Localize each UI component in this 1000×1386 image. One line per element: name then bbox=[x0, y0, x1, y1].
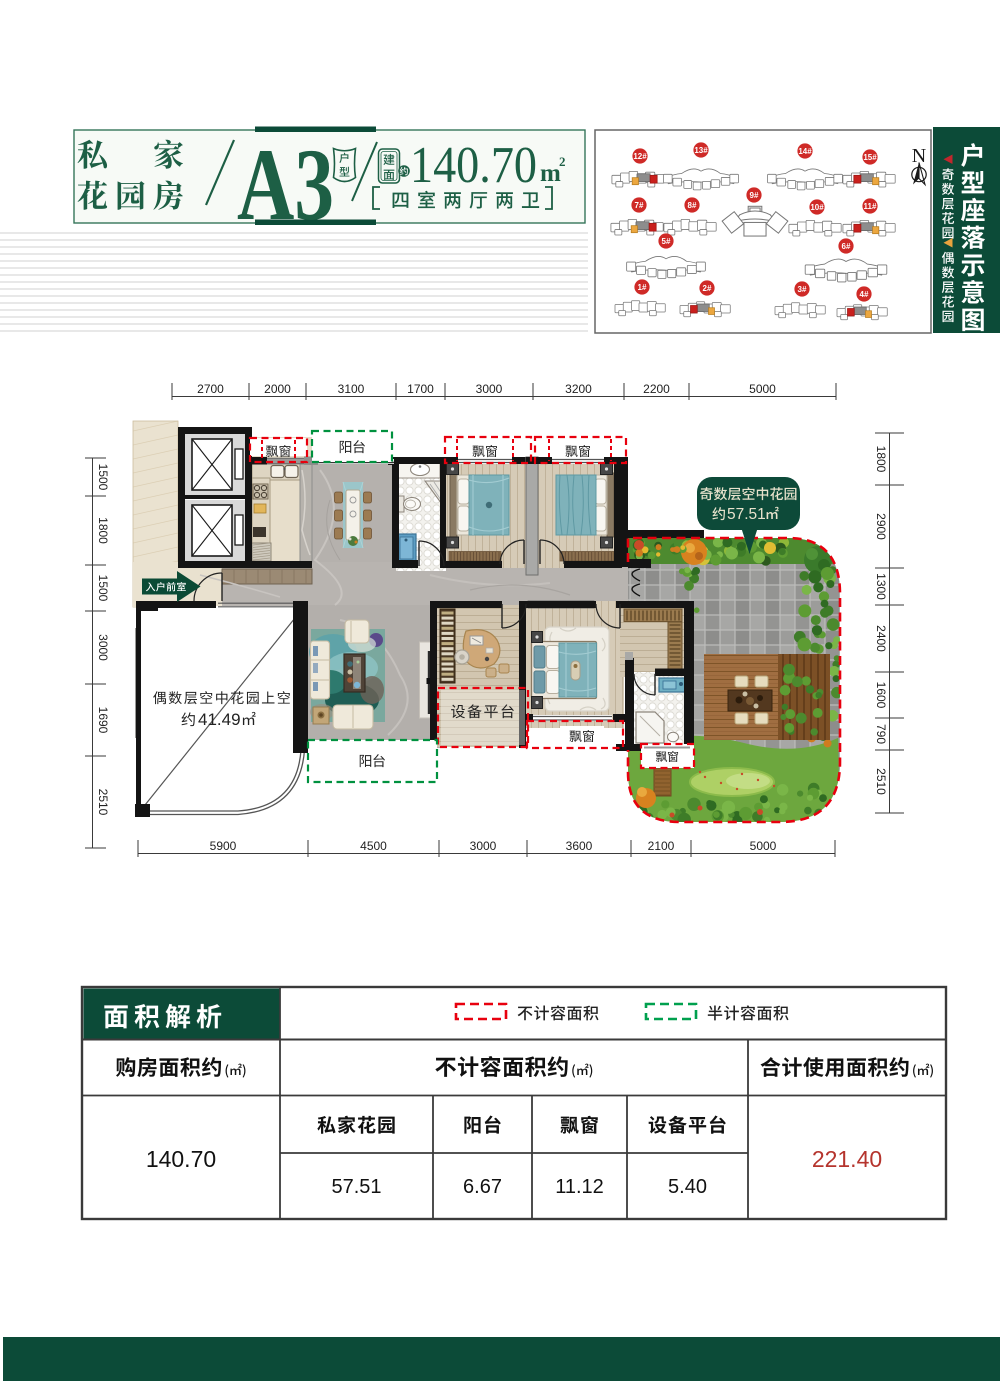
svg-text:12#: 12# bbox=[633, 152, 647, 161]
svg-text:5.40: 5.40 bbox=[668, 1176, 707, 1198]
svg-text:13#: 13# bbox=[694, 146, 708, 155]
svg-text:1600: 1600 bbox=[874, 682, 888, 709]
svg-text:2510: 2510 bbox=[874, 768, 888, 795]
svg-text:57.51: 57.51 bbox=[727, 506, 766, 523]
svg-text:5#: 5# bbox=[662, 237, 671, 246]
svg-text:6#: 6# bbox=[842, 242, 851, 251]
svg-text:m: m bbox=[540, 160, 561, 187]
svg-text:41.49: 41.49 bbox=[198, 710, 241, 729]
svg-text:2200: 2200 bbox=[643, 382, 670, 396]
svg-text:2700: 2700 bbox=[197, 382, 224, 396]
svg-text:5900: 5900 bbox=[210, 839, 237, 853]
svg-text:A3: A3 bbox=[237, 128, 334, 242]
svg-text:1500: 1500 bbox=[96, 464, 110, 491]
svg-text:6.67: 6.67 bbox=[463, 1176, 502, 1198]
svg-text:3100: 3100 bbox=[338, 382, 365, 396]
svg-text:9#: 9# bbox=[750, 191, 759, 200]
svg-text:4500: 4500 bbox=[360, 839, 387, 853]
svg-text:3000: 3000 bbox=[470, 839, 497, 853]
svg-text:7#: 7# bbox=[635, 201, 644, 210]
svg-text:3600: 3600 bbox=[566, 839, 593, 853]
svg-text:3#: 3# bbox=[798, 285, 807, 294]
svg-text:15#: 15# bbox=[863, 153, 877, 162]
svg-text:1690: 1690 bbox=[96, 707, 110, 734]
svg-text:1800: 1800 bbox=[96, 517, 110, 544]
svg-text:14#: 14# bbox=[798, 147, 812, 156]
svg-text:5000: 5000 bbox=[749, 382, 776, 396]
svg-text:4#: 4# bbox=[860, 290, 869, 299]
svg-text:1500: 1500 bbox=[96, 575, 110, 602]
svg-text:3000: 3000 bbox=[476, 382, 503, 396]
svg-text:221.40: 221.40 bbox=[812, 1146, 882, 1172]
svg-text:10#: 10# bbox=[810, 203, 824, 212]
svg-text:2400: 2400 bbox=[874, 625, 888, 652]
svg-text:8#: 8# bbox=[688, 201, 697, 210]
svg-text:2000: 2000 bbox=[264, 382, 291, 396]
svg-text:2510: 2510 bbox=[96, 789, 110, 816]
svg-text:3200: 3200 bbox=[565, 382, 592, 396]
svg-text:140.70: 140.70 bbox=[146, 1146, 216, 1172]
svg-text:1300: 1300 bbox=[874, 573, 888, 600]
svg-text:1800: 1800 bbox=[874, 446, 888, 473]
svg-text:5000: 5000 bbox=[750, 839, 777, 853]
svg-text:2#: 2# bbox=[703, 284, 712, 293]
svg-text:3000: 3000 bbox=[96, 634, 110, 661]
svg-text:57.51: 57.51 bbox=[331, 1176, 381, 1198]
svg-text:1#: 1# bbox=[638, 283, 647, 292]
svg-text:140.70: 140.70 bbox=[410, 137, 537, 194]
svg-text:2100: 2100 bbox=[648, 839, 675, 853]
svg-text:2: 2 bbox=[559, 154, 566, 169]
svg-text:1700: 1700 bbox=[407, 382, 434, 396]
svg-text:790: 790 bbox=[874, 724, 888, 744]
svg-text:11.12: 11.12 bbox=[555, 1176, 604, 1198]
svg-text:2900: 2900 bbox=[874, 513, 888, 540]
svg-text:11#: 11# bbox=[864, 202, 877, 211]
